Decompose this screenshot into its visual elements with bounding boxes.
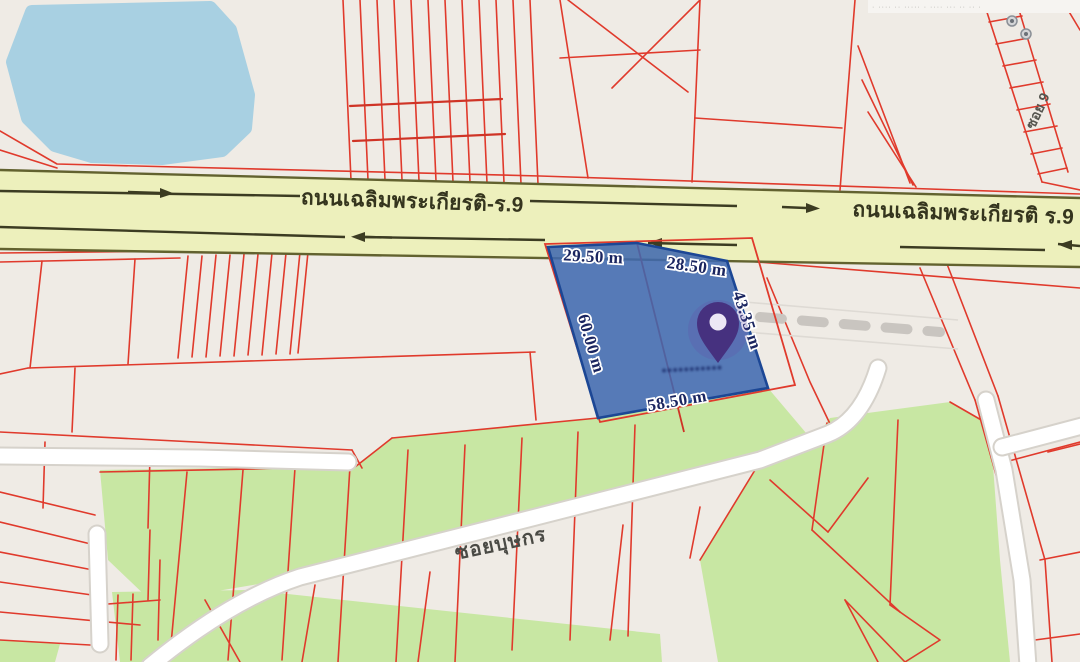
map-canvas[interactable]: 29.50 m 28.50 m 60.00 m 43.35 m 58.50 m … [0, 0, 1080, 662]
pond [13, 8, 248, 158]
watermark-text: · ···· ·· ····· · ···· ··· ·· ·· · [872, 4, 982, 11]
dim-top-left: 29.50 m [563, 245, 624, 267]
cadastral-map: 29.50 m 28.50 m 60.00 m 43.35 m 58.50 m … [0, 0, 1080, 662]
blurred-caption: ••••••••••• [661, 360, 723, 378]
